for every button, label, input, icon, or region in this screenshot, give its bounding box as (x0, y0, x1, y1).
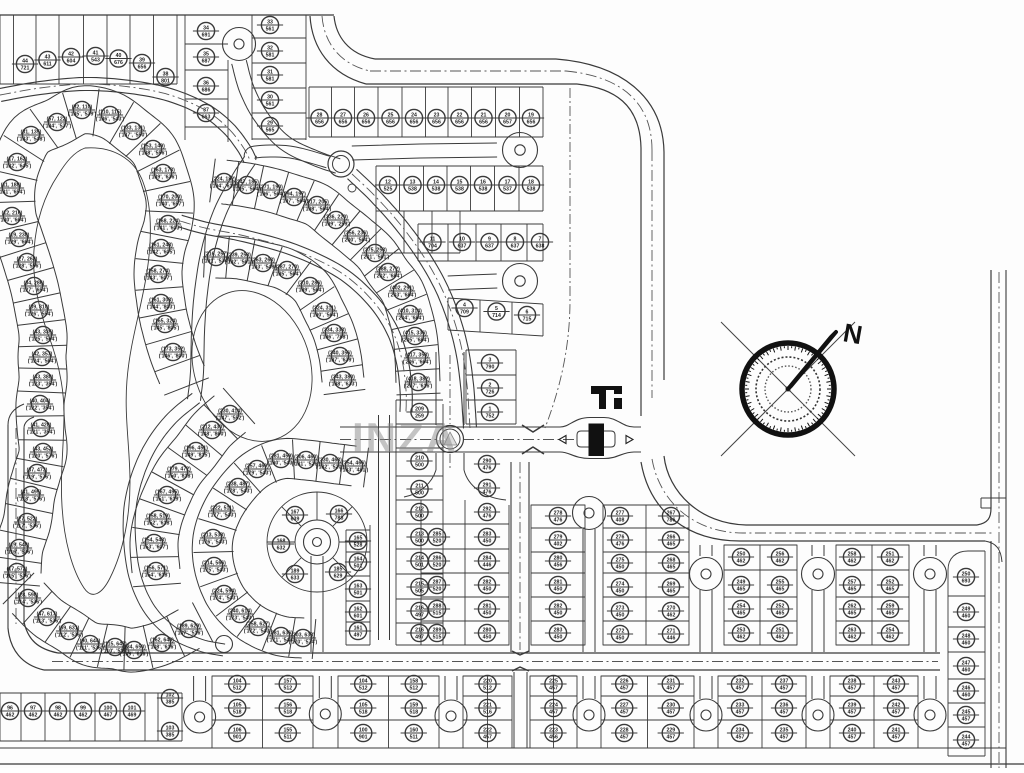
svg-text:515: 515 (433, 635, 442, 641)
svg-text:('109', '616'): ('109', '616') (120, 652, 149, 658)
svg-text:259: 259 (886, 603, 895, 609)
svg-text:('154', '618'): ('154', '618') (142, 573, 171, 579)
svg-text:(153, 149): (153, 149) (141, 143, 165, 149)
svg-text:28: 28 (317, 112, 323, 118)
svg-text:31: 31 (267, 69, 273, 75)
svg-text:44: 44 (22, 58, 28, 64)
svg-text:164: 164 (354, 556, 363, 562)
svg-text:(356, 236): (356, 236) (344, 230, 368, 236)
svg-text:284: 284 (483, 555, 492, 561)
svg-text:456: 456 (549, 735, 558, 741)
svg-text:('137', '550'): ('137', '550') (119, 133, 148, 139)
svg-text:258: 258 (848, 551, 857, 557)
svg-text:2: 2 (489, 382, 492, 388)
svg-text:467: 467 (104, 713, 113, 719)
svg-text:788: 788 (335, 516, 344, 522)
svg-text:('139', '636'): ('139', '636') (149, 175, 178, 181)
svg-text:100: 100 (104, 705, 113, 711)
svg-text:96: 96 (7, 705, 13, 711)
svg-text:(27, 262): (27, 262) (17, 256, 38, 262)
svg-text:38: 38 (163, 71, 169, 77)
svg-text:(388, 272): (388, 272) (376, 266, 400, 272)
svg-text:(224, 594): (224, 594) (212, 588, 236, 594)
svg-text:450: 450 (483, 587, 492, 593)
svg-text:629: 629 (334, 574, 343, 580)
svg-text:('107', '516'): ('107', '516') (175, 631, 204, 637)
svg-text:462: 462 (886, 635, 895, 641)
svg-text:518: 518 (359, 710, 368, 716)
svg-text:(415, 336): (415, 336) (403, 330, 427, 336)
svg-text:('134', '537'): ('134', '537') (43, 124, 72, 130)
svg-text:(43, 335): (43, 335) (33, 329, 54, 335)
svg-text:('179', '543'): ('179', '543') (243, 471, 272, 477)
svg-text:462: 462 (848, 559, 857, 565)
svg-text:457: 457 (620, 710, 629, 716)
svg-text:512: 512 (283, 686, 292, 692)
svg-text:272: 272 (616, 628, 625, 634)
svg-text:237: 237 (780, 678, 789, 684)
svg-text:('114', '536'): ('114', '536') (14, 600, 43, 606)
svg-text:(134, 650): (134, 650) (122, 644, 146, 650)
svg-text:465: 465 (848, 611, 857, 617)
svg-text:(163, 173): (163, 173) (151, 167, 175, 173)
svg-text:501: 501 (415, 563, 424, 569)
svg-text:('121', '354'): ('121', '354') (27, 430, 56, 436)
svg-text:(402, 291): (402, 291) (390, 285, 414, 291)
svg-text:565: 565 (266, 128, 275, 134)
svg-text:(239, 258): (239, 258) (227, 252, 251, 258)
svg-text:901: 901 (233, 735, 242, 741)
svg-text:('141', '603'): ('141', '603') (154, 226, 183, 232)
svg-text:402: 402 (554, 542, 563, 548)
svg-text:656: 656 (315, 120, 324, 126)
svg-text:(410, 314): (410, 314) (398, 308, 422, 314)
svg-text:('148', '860'): ('148', '860') (198, 432, 227, 438)
svg-text:247: 247 (962, 660, 971, 666)
svg-text:457: 457 (848, 686, 857, 692)
svg-text:97: 97 (30, 705, 36, 711)
svg-text:13: 13 (410, 179, 416, 185)
svg-text:457: 457 (892, 735, 901, 741)
svg-text:(11, 188): (11, 188) (1, 182, 22, 188)
svg-text:(31, 495): (31, 495) (21, 489, 42, 495)
svg-text:10: 10 (459, 236, 465, 242)
svg-text:465: 465 (776, 587, 785, 593)
svg-text:158: 158 (409, 678, 418, 684)
svg-text:212: 212 (415, 506, 424, 512)
svg-text:457: 457 (620, 686, 629, 692)
svg-text:('175', '543'): ('175', '543') (200, 568, 229, 574)
svg-text:268: 268 (667, 557, 676, 563)
svg-text:457: 457 (962, 717, 971, 723)
svg-text:385: 385 (166, 733, 175, 739)
svg-text:('132', '645'): ('132', '645') (3, 164, 32, 170)
svg-text:656: 656 (339, 120, 348, 126)
svg-text:(247, 185): (247, 185) (235, 179, 259, 185)
svg-text:637: 637 (458, 244, 467, 250)
svg-text:518: 518 (283, 710, 292, 716)
svg-text:('144', '803'): ('144', '803') (147, 305, 176, 311)
svg-text:657: 657 (503, 120, 512, 126)
svg-text:('187', '639'): ('187', '639') (326, 358, 355, 364)
svg-text:39: 39 (139, 57, 145, 63)
svg-text:273: 273 (616, 605, 625, 611)
svg-text:(37, 473): (37, 473) (27, 467, 48, 473)
svg-text:715: 715 (523, 317, 532, 323)
svg-text:216: 216 (415, 605, 424, 611)
svg-text:704: 704 (428, 244, 437, 250)
svg-text:633: 633 (291, 576, 300, 582)
svg-text:42: 42 (68, 51, 74, 57)
svg-text:27: 27 (340, 112, 346, 118)
svg-text:518: 518 (233, 710, 242, 716)
svg-text:286: 286 (433, 555, 442, 561)
svg-text:465: 465 (776, 611, 785, 617)
svg-text:450: 450 (616, 613, 625, 619)
svg-text:280: 280 (554, 555, 563, 561)
svg-text:(28, 598): (28, 598) (18, 592, 39, 598)
svg-text:('146', '800'): ('146', '800') (159, 354, 188, 360)
svg-text:457: 457 (483, 735, 492, 741)
svg-text:462: 462 (848, 635, 857, 641)
svg-text:538: 538 (408, 187, 417, 193)
svg-text:512: 512 (483, 686, 492, 692)
svg-text:538: 538 (479, 187, 488, 193)
svg-text:('153', '607'): ('153', '607') (140, 545, 169, 551)
svg-text:465: 465 (737, 587, 746, 593)
svg-text:(336, 220): (336, 220) (324, 214, 348, 220)
svg-text:15: 15 (457, 179, 463, 185)
svg-text:254: 254 (886, 627, 895, 633)
svg-text:156: 156 (283, 702, 292, 708)
svg-text:282: 282 (554, 603, 563, 609)
svg-text:462: 462 (667, 613, 676, 619)
svg-text:159: 159 (409, 702, 418, 708)
svg-text:('135', '539'): ('135', '539') (68, 112, 97, 118)
svg-text:252: 252 (776, 603, 785, 609)
svg-text:(196, 451): (196, 451) (184, 445, 208, 451)
svg-text:497: 497 (415, 635, 424, 641)
svg-text:266: 266 (667, 534, 676, 540)
svg-text:456: 456 (554, 563, 563, 569)
svg-text:465: 465 (667, 565, 676, 571)
svg-text:19: 19 (528, 112, 534, 118)
svg-text:528: 528 (354, 543, 363, 549)
svg-text:214: 214 (415, 555, 424, 561)
svg-text:(334, 333): (334, 333) (322, 327, 346, 333)
svg-text:1: 1 (489, 406, 492, 412)
svg-text:221: 221 (483, 702, 492, 708)
svg-text:('119', '576'): ('119', '576') (23, 475, 52, 481)
svg-text:('186', '788'): ('186', '788') (320, 335, 349, 341)
svg-text:30: 30 (267, 94, 273, 100)
svg-text:(214, 566): (214, 566) (202, 560, 226, 566)
svg-text:457: 457 (736, 710, 745, 716)
svg-text:('138', '556'): ('138', '556') (139, 151, 168, 157)
svg-text:290: 290 (483, 458, 492, 464)
svg-text:236: 236 (780, 702, 789, 708)
svg-text:285: 285 (433, 531, 442, 537)
svg-text:462: 462 (737, 559, 746, 565)
svg-text:167: 167 (291, 509, 300, 515)
svg-text:248: 248 (962, 633, 971, 639)
svg-text:709: 709 (460, 310, 469, 316)
svg-text:462: 462 (54, 713, 63, 719)
svg-text:163: 163 (354, 583, 363, 589)
svg-text:693: 693 (962, 579, 971, 585)
svg-text:256: 256 (776, 551, 785, 557)
svg-text:('200', '564'): ('200', '564') (342, 238, 371, 244)
svg-text:(216, 257): (216, 257) (204, 251, 228, 257)
svg-text:278: 278 (554, 510, 563, 516)
svg-text:228: 228 (620, 727, 629, 733)
svg-text:271: 271 (667, 628, 676, 634)
svg-text:476: 476 (483, 490, 492, 496)
svg-text:(69, 631): (69, 631) (59, 625, 80, 631)
svg-text:457: 457 (736, 686, 745, 692)
svg-text:37: 37 (203, 107, 209, 113)
svg-text:('193', '549'): ('193', '549') (249, 265, 278, 271)
svg-text:752: 752 (486, 414, 495, 420)
svg-text:(418, 382): (418, 382) (406, 376, 430, 382)
svg-text:(133, 131): (133, 131) (121, 125, 145, 131)
svg-text:161: 161 (354, 625, 363, 631)
svg-text:277: 277 (616, 510, 625, 516)
svg-text:263: 263 (848, 627, 857, 633)
svg-text:(47, 617): (47, 617) (37, 611, 58, 617)
svg-text:469: 469 (128, 713, 137, 719)
svg-text:43: 43 (45, 54, 51, 60)
svg-text:611: 611 (43, 62, 51, 68)
svg-text:457: 457 (666, 710, 675, 716)
svg-text:462: 462 (29, 713, 38, 719)
svg-text:(90, 644): (90, 644) (80, 638, 101, 644)
svg-text:257: 257 (848, 579, 857, 585)
svg-text:100: 100 (359, 727, 368, 733)
svg-text:('143', '607'): ('143', '607') (144, 276, 173, 282)
svg-text:497: 497 (415, 613, 424, 619)
svg-text:726: 726 (486, 390, 495, 396)
svg-text:(41, 428): (41, 428) (31, 422, 52, 428)
svg-text:457: 457 (848, 735, 857, 741)
svg-text:(224, 182): (224, 182) (212, 176, 236, 182)
svg-text:(173, 352): (173, 352) (161, 346, 185, 352)
svg-text:21: 21 (481, 112, 487, 118)
svg-text:538: 538 (432, 187, 441, 193)
svg-text:450: 450 (616, 636, 625, 642)
svg-text:('129', '664'): ('129', '664') (5, 240, 34, 246)
svg-text:(306, 460): (306, 460) (294, 454, 318, 460)
svg-text:(158, 519): (158, 519) (146, 513, 170, 519)
svg-text:(82, 110): (82, 110) (72, 104, 93, 110)
svg-text:255: 255 (776, 579, 785, 585)
svg-text:229: 229 (666, 727, 675, 733)
svg-text:(179, 472): (179, 472) (167, 466, 191, 472)
svg-text:269: 269 (667, 581, 676, 587)
svg-text:457: 457 (736, 735, 745, 741)
svg-text:581: 581 (266, 53, 275, 59)
svg-text:511: 511 (410, 735, 418, 741)
svg-text:(40, 404): (40, 404) (30, 398, 51, 404)
svg-text:465: 465 (667, 589, 676, 595)
svg-text:250: 250 (737, 551, 746, 557)
svg-text:501: 501 (354, 591, 363, 597)
svg-text:476: 476 (554, 518, 563, 524)
svg-text:465: 465 (848, 587, 857, 593)
svg-text:('145', '805'): ('145', '805') (151, 326, 180, 332)
svg-text:(161, 303): (161, 303) (149, 297, 173, 303)
svg-text:('113', '536'): ('113', '536') (33, 619, 62, 625)
svg-text:('131', '654'): ('131', '654') (0, 190, 26, 196)
svg-text:(354, 466): (354, 466) (342, 460, 366, 466)
svg-text:(281, 636): (281, 636) (269, 630, 293, 636)
svg-text:(165, 324): (165, 324) (153, 318, 177, 324)
svg-text:686: 686 (202, 88, 211, 94)
svg-text:157: 157 (283, 678, 292, 684)
svg-text:457: 457 (549, 686, 558, 692)
svg-text:185: 185 (334, 566, 343, 572)
svg-text:604: 604 (67, 59, 76, 65)
svg-text:(156, 571): (156, 571) (144, 565, 168, 571)
svg-text:790: 790 (486, 365, 495, 371)
svg-text:26: 26 (363, 112, 369, 118)
svg-text:(222, 511): (222, 511) (210, 505, 234, 511)
svg-text:(303, 638): (303, 638) (291, 632, 315, 638)
svg-text:251: 251 (886, 551, 895, 557)
svg-text:460: 460 (962, 693, 971, 699)
svg-text:227: 227 (620, 702, 629, 708)
svg-text:385: 385 (166, 700, 175, 706)
svg-text:160: 160 (409, 727, 418, 733)
svg-text:901: 901 (359, 735, 368, 741)
svg-text:457: 457 (848, 710, 857, 716)
svg-text:457: 457 (780, 686, 789, 692)
svg-text:('140', '657'): ('140', '657') (156, 202, 185, 208)
svg-text:656: 656 (432, 120, 441, 126)
svg-text:(330, 463): (330, 463) (318, 457, 342, 463)
svg-text:(17, 162): (17, 162) (7, 156, 28, 162)
svg-text:('203', '684'): ('203', '684') (388, 293, 417, 299)
svg-text:450: 450 (483, 635, 492, 641)
svg-text:('149', '815'): ('149', '815') (182, 453, 211, 459)
svg-text:INZA: INZA (352, 414, 458, 461)
svg-text:101: 101 (128, 705, 137, 711)
svg-text:281: 281 (483, 603, 492, 609)
svg-text:('122', '354'): ('122', '354') (26, 406, 55, 412)
svg-text:656: 656 (410, 120, 419, 126)
svg-text:288: 288 (433, 603, 442, 609)
svg-text:162: 162 (354, 606, 363, 612)
svg-text:(110, 115): (110, 115) (98, 109, 121, 115)
svg-text:450: 450 (554, 635, 563, 641)
svg-text:('205', '684'): ('205', '684') (401, 338, 430, 344)
svg-text:('206', '664'): ('206', '664') (403, 360, 432, 366)
svg-text:226: 226 (620, 678, 629, 684)
svg-text:251: 251 (776, 627, 785, 633)
svg-text:462: 462 (737, 635, 746, 641)
svg-text:36: 36 (203, 80, 209, 86)
svg-text:231: 231 (666, 678, 675, 684)
svg-text:('185', '564'): ('185', '564') (273, 272, 302, 278)
svg-text:500: 500 (415, 539, 424, 545)
svg-text:462: 462 (6, 713, 15, 719)
svg-text:511: 511 (284, 735, 292, 741)
svg-text:538: 538 (455, 187, 464, 193)
svg-text:18: 18 (528, 179, 534, 185)
svg-text:520: 520 (433, 563, 442, 569)
svg-text:('147', '552'): ('147', '552') (216, 416, 245, 422)
svg-text:('124', '564'): ('124', '564') (28, 359, 57, 365)
svg-text:249: 249 (737, 579, 746, 585)
svg-text:500: 500 (415, 463, 424, 469)
svg-text:209: 209 (415, 406, 424, 412)
svg-text:465: 465 (667, 542, 676, 548)
svg-text:(294, 197): (294, 197) (282, 191, 306, 197)
svg-text:543: 543 (91, 58, 100, 64)
svg-text:243: 243 (892, 678, 901, 684)
svg-text:24: 24 (411, 112, 417, 118)
svg-text:450: 450 (616, 589, 625, 595)
svg-text:638: 638 (536, 244, 545, 250)
svg-text:497: 497 (354, 633, 363, 639)
svg-text:7: 7 (539, 236, 542, 242)
svg-text:239: 239 (848, 702, 857, 708)
svg-text:637: 637 (485, 244, 494, 250)
svg-text:11: 11 (430, 236, 436, 242)
svg-text:('177', '543'): ('177', '543') (208, 513, 237, 519)
svg-text:450: 450 (483, 539, 492, 545)
svg-text:462: 462 (79, 713, 88, 719)
svg-text:(27, 522): (27, 522) (17, 516, 38, 522)
svg-text:520: 520 (433, 587, 442, 593)
svg-text:450: 450 (554, 587, 563, 593)
svg-text:457: 457 (892, 686, 901, 692)
svg-text:('180', '543'): ('180', '543') (267, 461, 296, 467)
svg-text:25: 25 (388, 112, 394, 118)
svg-text:656: 656 (138, 65, 147, 71)
svg-text:462: 462 (886, 559, 895, 565)
svg-text:457: 457 (962, 742, 971, 748)
svg-text:250: 250 (962, 571, 971, 577)
svg-text:('115', '536'): ('115', '536') (3, 574, 32, 580)
svg-text:3: 3 (489, 357, 492, 363)
svg-text:786: 786 (667, 518, 676, 524)
svg-text:5: 5 (495, 306, 498, 312)
svg-text:223: 223 (549, 727, 558, 733)
svg-text:211: 211 (415, 483, 423, 489)
svg-text:165: 165 (354, 535, 363, 541)
svg-text:457: 457 (620, 735, 629, 741)
svg-text:234: 234 (736, 727, 745, 733)
svg-text:('178', '543'): ('178', '543') (224, 489, 253, 495)
svg-text:446: 446 (667, 636, 676, 642)
svg-text:460: 460 (962, 614, 971, 620)
svg-text:(17, 572): (17, 572) (7, 566, 28, 572)
svg-text:('118', '576'): ('118', '576') (17, 497, 46, 503)
svg-text:('170', '574'): ('170', '574') (289, 640, 318, 646)
svg-text:166: 166 (335, 508, 344, 514)
svg-text:17: 17 (505, 179, 511, 185)
svg-text:282: 282 (483, 579, 492, 585)
svg-text:(230, 414): (230, 414) (218, 408, 242, 414)
svg-text:457: 457 (780, 735, 789, 741)
svg-text:(271, 190): (271, 190) (259, 184, 283, 190)
svg-text:(158, 274): (158, 274) (146, 268, 170, 274)
svg-text:35: 35 (203, 51, 209, 57)
svg-text:801: 801 (161, 79, 170, 85)
svg-text:213: 213 (415, 531, 424, 537)
svg-text:291: 291 (483, 482, 492, 488)
